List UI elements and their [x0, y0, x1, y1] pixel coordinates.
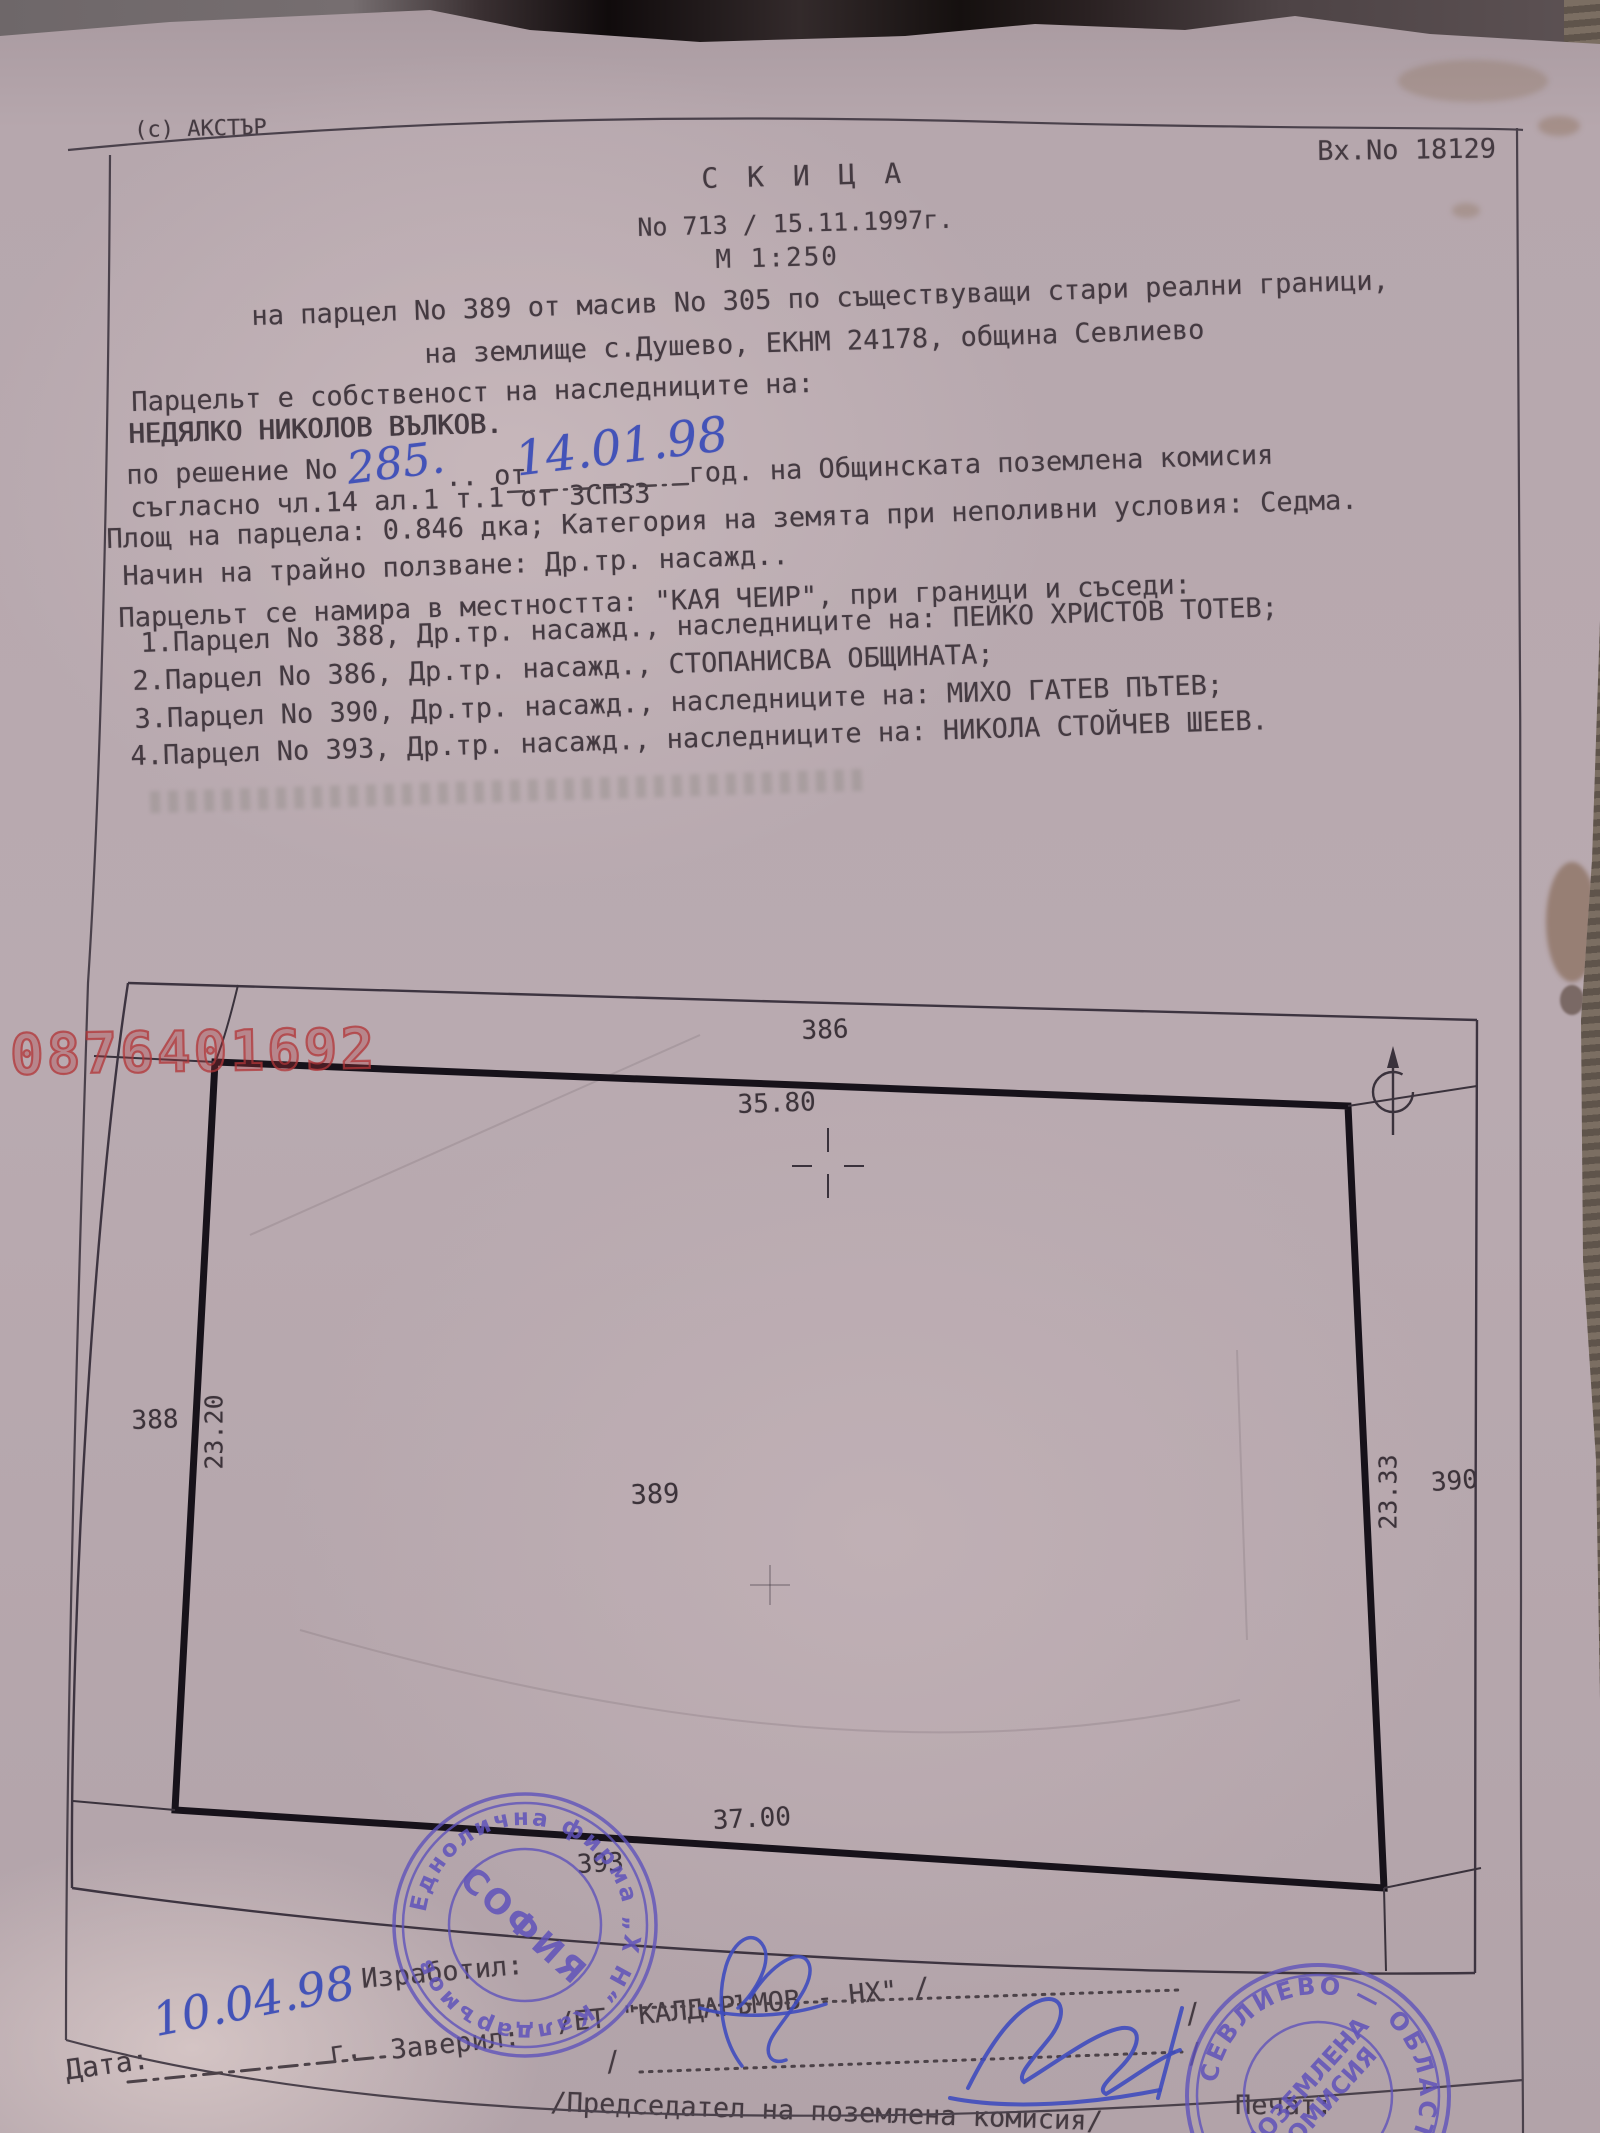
date-suffix: г.	[327, 2033, 364, 2068]
document-title: С К И Ц А	[701, 157, 908, 195]
decision-prefix: по решение No	[126, 454, 338, 491]
watermark-phone-number: 0876401692	[9, 1017, 377, 1088]
east-parcel-label: 390	[1430, 1465, 1479, 1498]
paper-stain	[1398, 60, 1548, 102]
paper-stain	[1452, 203, 1480, 218]
parcel-number-label: 389	[630, 1478, 680, 1511]
south-parcel-label: 393	[576, 1848, 624, 1880]
photographed-document: (с) АКСТЪР Вх.No 18129 С К И Ц А No 713 …	[0, 0, 1600, 2133]
north-parcel-label: 386	[801, 1014, 849, 1046]
south-dimension-label: 37.00	[712, 1802, 792, 1836]
paper-stain	[1560, 985, 1584, 1015]
seal-label: Печат:	[1235, 2090, 1333, 2121]
west-parcel-label: 388	[131, 1404, 179, 1436]
east-dimension-label: 23.33	[1374, 1454, 1403, 1529]
north-dimension-label: 35.80	[737, 1087, 816, 1120]
west-dimension-label: 23.20	[200, 1394, 229, 1469]
paper-stain	[1538, 116, 1580, 136]
scale-line: М 1:250	[715, 242, 839, 275]
copyright-note: (с) АКСТЪР	[134, 115, 267, 143]
entry-number: Вх.No 18129	[1317, 134, 1496, 167]
